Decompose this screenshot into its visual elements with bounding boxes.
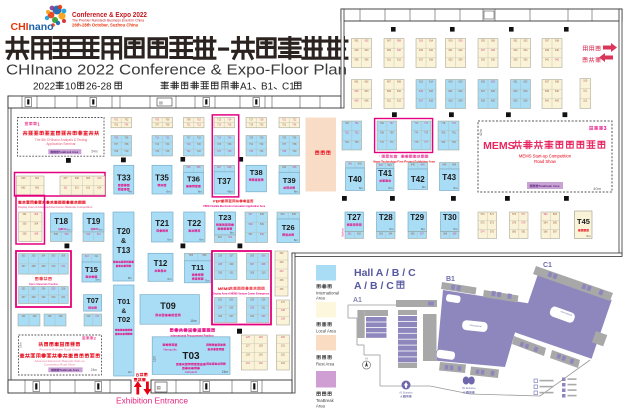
svg-text:▤: ▤	[159, 100, 163, 105]
svg-text:309: 309	[250, 272, 255, 275]
svg-text:6m: 6m	[389, 227, 394, 231]
svg-text:10: 10	[65, 82, 77, 93]
svg-text:925: 925	[481, 39, 486, 42]
svg-text:809: 809	[387, 90, 392, 93]
svg-text:582: 582	[544, 213, 549, 216]
svg-text:818: 818	[429, 100, 434, 103]
svg-text:824: 824	[459, 100, 464, 103]
svg-text:919: 919	[449, 39, 454, 42]
svg-text:A / B / C: A / B / C	[354, 280, 394, 292]
svg-text:910: 910	[397, 49, 402, 52]
svg-text:6m: 6m	[198, 190, 203, 194]
svg-text:T12: T12	[154, 259, 168, 268]
svg-text:129: 129	[246, 353, 251, 356]
svg-text:Exhibition Entrance: Exhibition Entrance	[116, 396, 188, 406]
svg-text:838: 838	[555, 80, 560, 83]
svg-text:627: 627	[217, 166, 222, 169]
svg-text:810: 810	[397, 90, 402, 93]
svg-text:736: 736	[292, 136, 297, 139]
svg-text:811: 811	[387, 100, 391, 103]
svg-text:708: 708	[124, 143, 129, 146]
svg-text:361: 361	[348, 232, 353, 235]
svg-text:714: 714	[227, 118, 232, 121]
svg-text:24m: 24m	[91, 368, 98, 372]
svg-text:803: 803	[355, 90, 360, 93]
svg-text:723: 723	[217, 136, 222, 139]
svg-text:CHInano 2022 Conference & Expo: CHInano 2022 Conference & Expo-Floor Pla…	[6, 63, 347, 79]
svg-text:833: 833	[514, 90, 519, 93]
svg-text:127: 127	[246, 345, 251, 348]
svg-text:Road Show: Road Show	[534, 159, 557, 164]
svg-text:920: 920	[459, 39, 464, 42]
svg-text:▤: ▤	[157, 385, 162, 390]
svg-text:CHI: CHI	[11, 21, 29, 33]
svg-text:934: 934	[524, 49, 529, 52]
svg-text:718: 718	[197, 136, 202, 139]
svg-text:823: 823	[449, 100, 454, 103]
svg-text:304: 304	[34, 223, 39, 226]
svg-text:735: 735	[282, 136, 287, 139]
svg-text:908: 908	[397, 39, 402, 42]
svg-text:613: 613	[86, 186, 91, 189]
svg-text:6m: 6m	[230, 231, 235, 235]
svg-text:725: 725	[217, 143, 222, 146]
svg-text:327: 327	[22, 296, 27, 299]
svg-text:928: 928	[491, 49, 496, 52]
svg-text:45m: 45m	[227, 190, 233, 194]
svg-text:776: 776	[414, 141, 419, 144]
svg-text:6m: 6m	[388, 186, 393, 190]
svg-text:845: 845	[411, 163, 416, 166]
svg-text:916: 916	[429, 49, 434, 52]
svg-text:Area: Area	[316, 296, 326, 301]
svg-text:520: 520	[218, 236, 223, 239]
svg-text:T15: T15	[85, 265, 98, 274]
svg-text:308: 308	[261, 263, 266, 266]
svg-text:310: 310	[261, 272, 266, 275]
svg-text:329: 329	[41, 296, 46, 299]
svg-text:578: 578	[512, 222, 517, 225]
svg-text:714: 714	[165, 143, 170, 146]
svg-text:TeaBreak: TeaBreak	[316, 398, 335, 403]
svg-text:918: 918	[429, 59, 434, 62]
svg-text:C1: C1	[282, 82, 295, 93]
svg-text:738: 738	[292, 143, 297, 146]
svg-text:T29: T29	[410, 213, 424, 222]
svg-text:100: 100	[583, 79, 588, 82]
svg-text:137: 137	[281, 301, 286, 304]
svg-text:733: 733	[249, 150, 254, 153]
svg-text:N: N	[365, 357, 367, 361]
svg-text:100: 100	[281, 336, 286, 339]
svg-text:726: 726	[227, 143, 232, 146]
svg-text:C1: C1	[543, 262, 552, 269]
svg-text:575: 575	[490, 231, 495, 234]
svg-text:766: 766	[380, 122, 385, 125]
svg-text:915: 915	[419, 49, 424, 52]
svg-text:571: 571	[490, 213, 495, 216]
svg-text:': '	[397, 154, 398, 159]
svg-text:927: 927	[481, 49, 486, 52]
svg-text:710: 710	[124, 150, 129, 153]
svg-text:585: 585	[553, 222, 558, 225]
svg-text:511: 511	[97, 233, 101, 236]
svg-text:126: 126	[259, 336, 264, 339]
svg-text:832: 832	[524, 80, 529, 83]
svg-text:843: 843	[379, 164, 384, 167]
svg-text:6m: 6m	[359, 186, 364, 190]
svg-text:802: 802	[365, 80, 370, 83]
svg-text:921: 921	[449, 49, 454, 52]
svg-text:724: 724	[292, 124, 297, 127]
svg-text:307: 307	[22, 265, 27, 268]
svg-text:TeaBreak Area: TeaBreak Area	[60, 368, 80, 372]
svg-text:807: 807	[387, 80, 392, 83]
svg-text:T33: T33	[117, 174, 131, 183]
svg-text:210: 210	[86, 315, 91, 318]
svg-text:839: 839	[545, 90, 550, 93]
svg-text:528: 528	[260, 213, 265, 216]
svg-text:131: 131	[246, 362, 251, 365]
svg-text:510: 510	[86, 233, 91, 236]
svg-text:768: 768	[380, 132, 385, 135]
svg-text:Area: Area	[316, 404, 326, 409]
svg-text:6m: 6m	[199, 238, 204, 242]
svg-text:707: 707	[114, 143, 119, 146]
svg-text:362: 362	[357, 232, 362, 235]
svg-text:309: 309	[41, 265, 46, 268]
svg-text:936: 936	[524, 59, 529, 62]
svg-text:MEMS: MEMS	[218, 286, 230, 291]
svg-text:605: 605	[187, 166, 192, 169]
svg-text:841: 841	[348, 162, 353, 165]
svg-text:586: 586	[544, 231, 549, 234]
svg-text:570: 570	[481, 213, 486, 216]
svg-text:6m: 6m	[166, 190, 171, 194]
svg-text:905: 905	[355, 59, 360, 62]
svg-text:306: 306	[261, 254, 266, 257]
svg-text:534: 534	[281, 213, 286, 216]
svg-text:584: 584	[544, 222, 549, 225]
svg-text:Application Seminar: Application Seminar	[46, 142, 76, 146]
svg-text:328: 328	[32, 296, 37, 299]
svg-text:732: 732	[259, 143, 264, 146]
svg-text:708: 708	[165, 124, 170, 127]
svg-text:6m: 6m	[294, 238, 299, 242]
svg-text:607: 607	[64, 177, 69, 180]
svg-text:762: 762	[345, 132, 350, 135]
svg-text:344: 344	[280, 270, 285, 273]
svg-text:940: 940	[555, 49, 560, 52]
svg-text:608: 608	[75, 177, 80, 180]
svg-text:T21: T21	[155, 219, 169, 228]
svg-text:835: 835	[514, 100, 519, 103]
svg-text:232: 232	[250, 315, 255, 318]
svg-text:846: 846	[421, 163, 426, 166]
svg-text:207: 207	[229, 315, 234, 318]
svg-text:306: 306	[61, 255, 66, 258]
svg-text:782: 782	[441, 141, 446, 144]
svg-text:760: 760	[345, 122, 350, 125]
svg-text:233: 233	[261, 315, 266, 318]
svg-text:5m: 5m	[95, 278, 100, 282]
svg-text:T42: T42	[411, 175, 425, 184]
svg-text:771: 771	[390, 141, 395, 144]
svg-text:509: 509	[65, 233, 70, 236]
svg-text:813: 813	[419, 80, 424, 83]
svg-text:4m: 4m	[128, 190, 133, 194]
svg-text:836: 836	[524, 100, 529, 103]
svg-text:801: 801	[355, 80, 360, 83]
svg-text:Suzhou: Suzhou	[341, 228, 345, 237]
svg-text:331: 331	[61, 296, 66, 299]
svg-text:342: 342	[280, 252, 285, 255]
svg-text:': '	[379, 154, 380, 159]
svg-text:581: 581	[521, 231, 526, 234]
svg-text:717: 717	[187, 136, 192, 139]
svg-text:709: 709	[187, 118, 192, 121]
svg-text:T37: T37	[217, 177, 231, 186]
svg-text:730: 730	[259, 136, 264, 139]
svg-text:Competition Road Show: Competition Road Show	[44, 363, 76, 367]
svg-text:MEMS: MEMS	[483, 140, 514, 152]
svg-text:628: 628	[227, 166, 232, 169]
svg-text:610: 610	[97, 177, 102, 180]
svg-text:924: 924	[459, 59, 464, 62]
svg-text:230: 230	[250, 307, 255, 310]
svg-text:779: 779	[452, 122, 457, 125]
svg-text:QIKU: QIKU	[58, 227, 66, 231]
svg-text:42m: 42m	[479, 129, 483, 136]
svg-text:724: 724	[227, 136, 232, 139]
svg-text:Products Release Road Show: Products Release Road Show	[39, 348, 80, 352]
svg-text:577: 577	[521, 213, 526, 216]
svg-text:778: 778	[441, 122, 446, 125]
svg-text:713: 713	[155, 143, 160, 146]
svg-text:324: 324	[41, 287, 46, 290]
svg-text:330: 330	[218, 272, 223, 275]
svg-text:806: 806	[365, 100, 370, 103]
svg-text:308: 308	[32, 265, 37, 268]
svg-text:138: 138	[281, 309, 286, 312]
svg-text:706: 706	[165, 118, 170, 121]
svg-text:830: 830	[491, 100, 496, 103]
svg-text:828: 828	[491, 90, 496, 93]
svg-text:132: 132	[259, 362, 264, 365]
svg-text:T38: T38	[250, 168, 263, 177]
svg-text:527: 527	[249, 213, 254, 216]
svg-text:815: 815	[419, 90, 424, 93]
svg-text:325: 325	[51, 287, 56, 290]
svg-text:663: 663	[35, 186, 40, 189]
svg-text:719: 719	[249, 124, 254, 127]
svg-text:Hall A / B / C: Hall A / B / C	[354, 267, 416, 279]
svg-text:202: 202	[218, 298, 223, 301]
svg-text:929: 929	[481, 59, 486, 62]
svg-text:842: 842	[358, 162, 363, 165]
svg-text:781: 781	[452, 132, 457, 135]
svg-text:713: 713	[217, 118, 222, 121]
svg-text:721: 721	[282, 118, 287, 121]
svg-text:931: 931	[514, 39, 519, 42]
svg-text:346: 346	[280, 288, 285, 291]
svg-text:6m: 6m	[167, 238, 172, 242]
svg-text:T02: T02	[117, 315, 130, 324]
svg-text:4m: 4m	[128, 370, 133, 374]
svg-text:505: 505	[189, 254, 194, 257]
svg-text:901: 901	[355, 39, 360, 42]
svg-text:722: 722	[292, 118, 297, 121]
svg-text:574: 574	[481, 231, 486, 234]
svg-text:26-28: 26-28	[86, 82, 112, 93]
svg-text:T39: T39	[283, 176, 296, 185]
svg-text:661: 661	[35, 177, 40, 180]
svg-text:T20: T20	[117, 227, 131, 236]
svg-text:125: 125	[246, 336, 251, 339]
svg-text:MEMS Start-up Competition: MEMS Start-up Competition	[519, 154, 572, 159]
svg-text:709: 709	[114, 150, 119, 153]
svg-text:734: 734	[259, 150, 264, 153]
svg-text:837: 837	[545, 80, 550, 83]
svg-text:T35: T35	[155, 174, 169, 183]
svg-text:826: 826	[491, 80, 496, 83]
svg-text:nano: nano	[29, 21, 54, 33]
svg-text:715: 715	[155, 150, 160, 153]
svg-text:228: 228	[250, 298, 255, 301]
svg-text:739: 739	[282, 150, 287, 153]
svg-text:848: 848	[442, 163, 447, 166]
svg-text:937: 937	[545, 39, 550, 42]
svg-text:705: 705	[155, 118, 160, 121]
svg-text:304: 304	[41, 255, 46, 258]
svg-text:101: 101	[583, 89, 588, 92]
svg-text:611: 611	[64, 186, 68, 189]
svg-text:530: 530	[260, 223, 265, 226]
svg-text:922: 922	[459, 49, 464, 52]
svg-text:531: 531	[249, 233, 254, 236]
svg-text:902: 902	[365, 39, 370, 42]
svg-text:TeaBreak Area: TeaBreak Area	[59, 150, 79, 154]
svg-text:701: 701	[114, 118, 119, 121]
svg-text:722: 722	[197, 150, 202, 153]
svg-text:662: 662	[21, 186, 26, 189]
svg-text:941: 941	[545, 59, 550, 62]
svg-text:903: 903	[355, 49, 360, 52]
svg-text:206: 206	[218, 315, 223, 318]
svg-text:822: 822	[459, 90, 464, 93]
svg-text:761: 761	[355, 122, 360, 125]
svg-text:T01: T01	[117, 297, 130, 306]
svg-text:728: 728	[227, 150, 232, 153]
svg-text:913: 913	[419, 39, 424, 42]
svg-text:T18: T18	[54, 217, 68, 226]
svg-text:935: 935	[514, 59, 519, 62]
svg-text:606: 606	[197, 166, 202, 169]
svg-text:772: 772	[414, 122, 419, 125]
svg-text:A1: A1	[240, 82, 253, 93]
svg-text:302: 302	[22, 255, 27, 258]
svg-text:712: 712	[197, 124, 202, 127]
svg-text:366: 366	[411, 232, 416, 235]
svg-text:933: 933	[514, 49, 519, 52]
svg-text:914: 914	[429, 39, 434, 42]
svg-text:6m: 6m	[294, 190, 299, 194]
svg-text:660: 660	[21, 177, 26, 180]
svg-text:Rest Area: Rest Area	[316, 362, 335, 367]
svg-text:306: 306	[34, 233, 39, 236]
svg-text:&: &	[121, 238, 126, 245]
svg-text:103: 103	[281, 362, 286, 365]
svg-text:731: 731	[249, 143, 254, 146]
svg-text:6m: 6m	[98, 228, 103, 232]
svg-text:305: 305	[51, 255, 56, 258]
svg-text:711: 711	[187, 124, 191, 127]
svg-text:T28: T28	[379, 213, 393, 222]
svg-text:814: 814	[429, 80, 434, 83]
svg-text:323: 323	[32, 287, 37, 290]
svg-text:819: 819	[449, 80, 454, 83]
svg-text:231: 231	[261, 307, 266, 310]
svg-text:583: 583	[553, 213, 558, 216]
svg-text:326: 326	[61, 287, 66, 290]
svg-text:707: 707	[155, 124, 160, 127]
svg-text:716: 716	[227, 124, 232, 127]
svg-text:777: 777	[424, 141, 429, 144]
svg-text:825: 825	[481, 80, 486, 83]
svg-text:102: 102	[33, 315, 38, 318]
svg-text:330: 330	[51, 296, 56, 299]
svg-text:Nanopolis: Nanopolis	[163, 348, 177, 352]
svg-text:532: 532	[260, 233, 265, 236]
svg-text:587: 587	[553, 231, 558, 234]
svg-text:T03: T03	[182, 351, 200, 362]
svg-text:T30: T30	[443, 213, 457, 222]
svg-text:128: 128	[259, 345, 264, 348]
svg-text:Display Area of MEMS Venture C: Display Area of MEMS Venture Center Ente…	[213, 292, 270, 295]
svg-text:719: 719	[187, 143, 192, 146]
svg-text:717: 717	[249, 118, 254, 121]
svg-text:102: 102	[281, 353, 286, 356]
svg-text:939: 939	[545, 49, 550, 52]
svg-text:211: 211	[95, 315, 99, 318]
svg-text:932: 932	[524, 39, 529, 42]
svg-text:711: 711	[155, 136, 159, 139]
svg-text:T07: T07	[87, 298, 99, 305]
svg-text:343: 343	[280, 261, 285, 264]
svg-text:917: 917	[419, 59, 424, 62]
svg-text:842: 842	[555, 100, 560, 103]
svg-text:529: 529	[249, 223, 254, 226]
svg-text:508: 508	[54, 233, 59, 236]
svg-text:16m: 16m	[190, 319, 197, 323]
svg-text:834: 834	[524, 90, 529, 93]
svg-text:T40: T40	[348, 175, 362, 184]
svg-text:804: 804	[365, 90, 370, 93]
svg-text:T45: T45	[577, 217, 590, 226]
svg-text:TeaBreak Area: TeaBreak Area	[539, 184, 560, 188]
svg-text:715: 715	[217, 124, 222, 127]
svg-text:844: 844	[388, 164, 393, 167]
svg-text:572: 572	[481, 222, 486, 225]
svg-text:T19: T19	[87, 217, 101, 226]
svg-text:301: 301	[23, 213, 28, 216]
svg-text:PBFE Flexible Electronics Inno: PBFE Flexible Electronics Innovation App…	[203, 205, 265, 208]
svg-text:345: 345	[280, 279, 285, 282]
svg-text:B: B	[136, 372, 139, 377]
svg-text:831: 831	[514, 80, 519, 83]
svg-text:18m: 18m	[19, 342, 23, 348]
svg-text:816: 816	[429, 90, 434, 93]
